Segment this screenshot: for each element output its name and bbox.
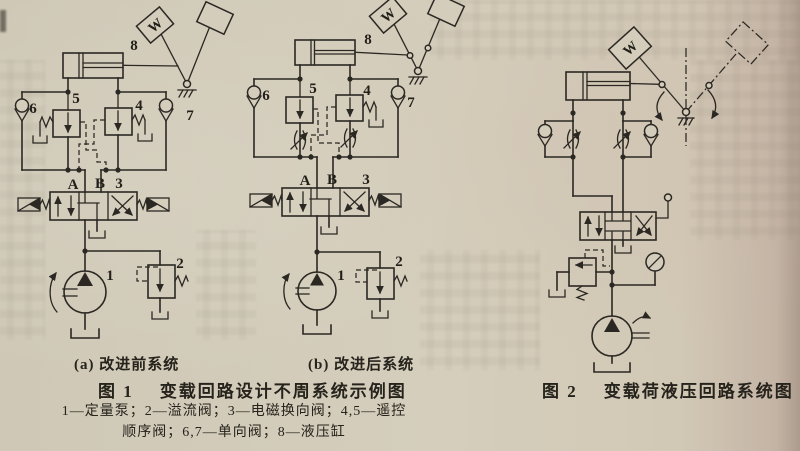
label-port-a-b: A	[300, 173, 311, 189]
figure1-caption: 图 1 变载回路设计不周系统示例图	[98, 377, 407, 402]
figure2-caption-title: 变载荷液压回路系统图	[604, 377, 794, 402]
load-lever-a: W	[136, 2, 233, 97]
check-valve-7-b: 7	[391, 86, 415, 111]
sequence-valve-5-b: 5	[286, 79, 317, 157]
figure2-caption: 图 2 变载荷液压回路系统图	[542, 377, 794, 402]
weight-box-b: W	[369, 0, 406, 33]
pilot-line-sv5-a	[80, 122, 106, 170]
label-relief-a: 2	[176, 256, 184, 272]
pilot-line-sv4-a	[79, 120, 105, 170]
pilot-throttle-right-b	[341, 129, 357, 147]
label-cylinder-b: 8	[364, 32, 372, 48]
label-sv4-a: 4	[135, 98, 143, 114]
label-sv5-a: 5	[72, 91, 80, 107]
relief-valve-b: 2	[356, 254, 407, 318]
subfigure-a-caption: (a) 改进前系统	[74, 353, 179, 374]
label-pump-b: 1	[337, 268, 345, 284]
check-valve-6-b: 6	[247, 86, 270, 108]
load-lever-b: W	[369, 0, 464, 84]
diagram-b: 8 W	[247, 0, 464, 334]
weight-box-2: W	[609, 27, 652, 69]
caption-gap	[578, 377, 604, 402]
solenoid-right-b	[369, 194, 401, 207]
relief-valve-2	[549, 250, 612, 300]
label-sv4-b: 4	[363, 83, 371, 99]
solenoid-left-a	[18, 198, 50, 211]
figure1-legend-line2: 顺序阀；6,7—单向阀；8—液压缸	[34, 421, 434, 441]
check-valve-6-a: 6	[15, 99, 37, 121]
pilot-line-sv5-b	[313, 109, 339, 157]
label-cv7-a: 7	[186, 108, 194, 124]
directional-valve-b: A B 3	[250, 172, 401, 234]
diagram-a: 8 W	[15, 2, 233, 338]
pressure-gauge-2	[612, 253, 664, 285]
subfigure-b-caption: (b) 改进后系统	[308, 353, 414, 374]
label-relief-b: 2	[395, 254, 403, 270]
label-sv5-b: 5	[309, 81, 317, 97]
cylinder-b: 8	[295, 32, 407, 65]
label-dv-b: 3	[362, 172, 370, 188]
pilot-line-sv4-b	[311, 107, 336, 157]
counter-box-a	[197, 2, 233, 35]
solenoid-left-b	[250, 194, 282, 207]
label-port-b-a: B	[95, 176, 105, 192]
relief-valve-a: 2	[137, 256, 188, 319]
pump-a: 1	[50, 251, 114, 338]
manual-directional-valve-2	[580, 194, 672, 253]
weight-box-a: W	[136, 7, 173, 43]
figure1-caption-label: 图 1	[98, 377, 134, 402]
sequence-valve-4-a: 4	[105, 92, 152, 170]
counter-box-b	[428, 0, 464, 26]
caption-gap	[134, 377, 160, 402]
label-cylinder-a: 8	[130, 38, 138, 54]
scanned-textbook-page: 8 W	[0, 0, 800, 451]
meter-valves-2	[538, 100, 658, 212]
label-cv7-b: 7	[407, 95, 415, 111]
label-dv-a: 3	[115, 176, 123, 192]
figure1-caption-title: 变载回路设计不周系统示例图	[160, 377, 407, 402]
directional-valve-a: A B 3	[18, 176, 169, 238]
label-port-a-a: A	[68, 177, 79, 193]
sequence-valve-5-a: 5	[33, 91, 80, 170]
label-cv6-b: 6	[262, 88, 270, 104]
label-pump-a: 1	[106, 268, 114, 284]
pump-2	[592, 316, 650, 372]
diagram-2: W	[538, 22, 768, 372]
figure1-legend-line1: 1—定量泵；2—溢流阀；3—电磁换向阀；4,5—遥控	[34, 400, 434, 420]
figure2-caption-label: 图 2	[542, 377, 578, 402]
pump-b: 1	[284, 252, 345, 334]
cylinder-a: 8	[63, 38, 178, 78]
sequence-valve-4-b: 4	[336, 79, 383, 157]
check-valve-7-a: 7	[159, 99, 194, 124]
label-port-b-b: B	[327, 172, 337, 188]
solenoid-right-a	[137, 198, 169, 211]
label-cv6-a: 6	[29, 101, 37, 117]
cylinder-2	[566, 72, 659, 100]
pilot-throttle-left-b	[291, 131, 307, 149]
